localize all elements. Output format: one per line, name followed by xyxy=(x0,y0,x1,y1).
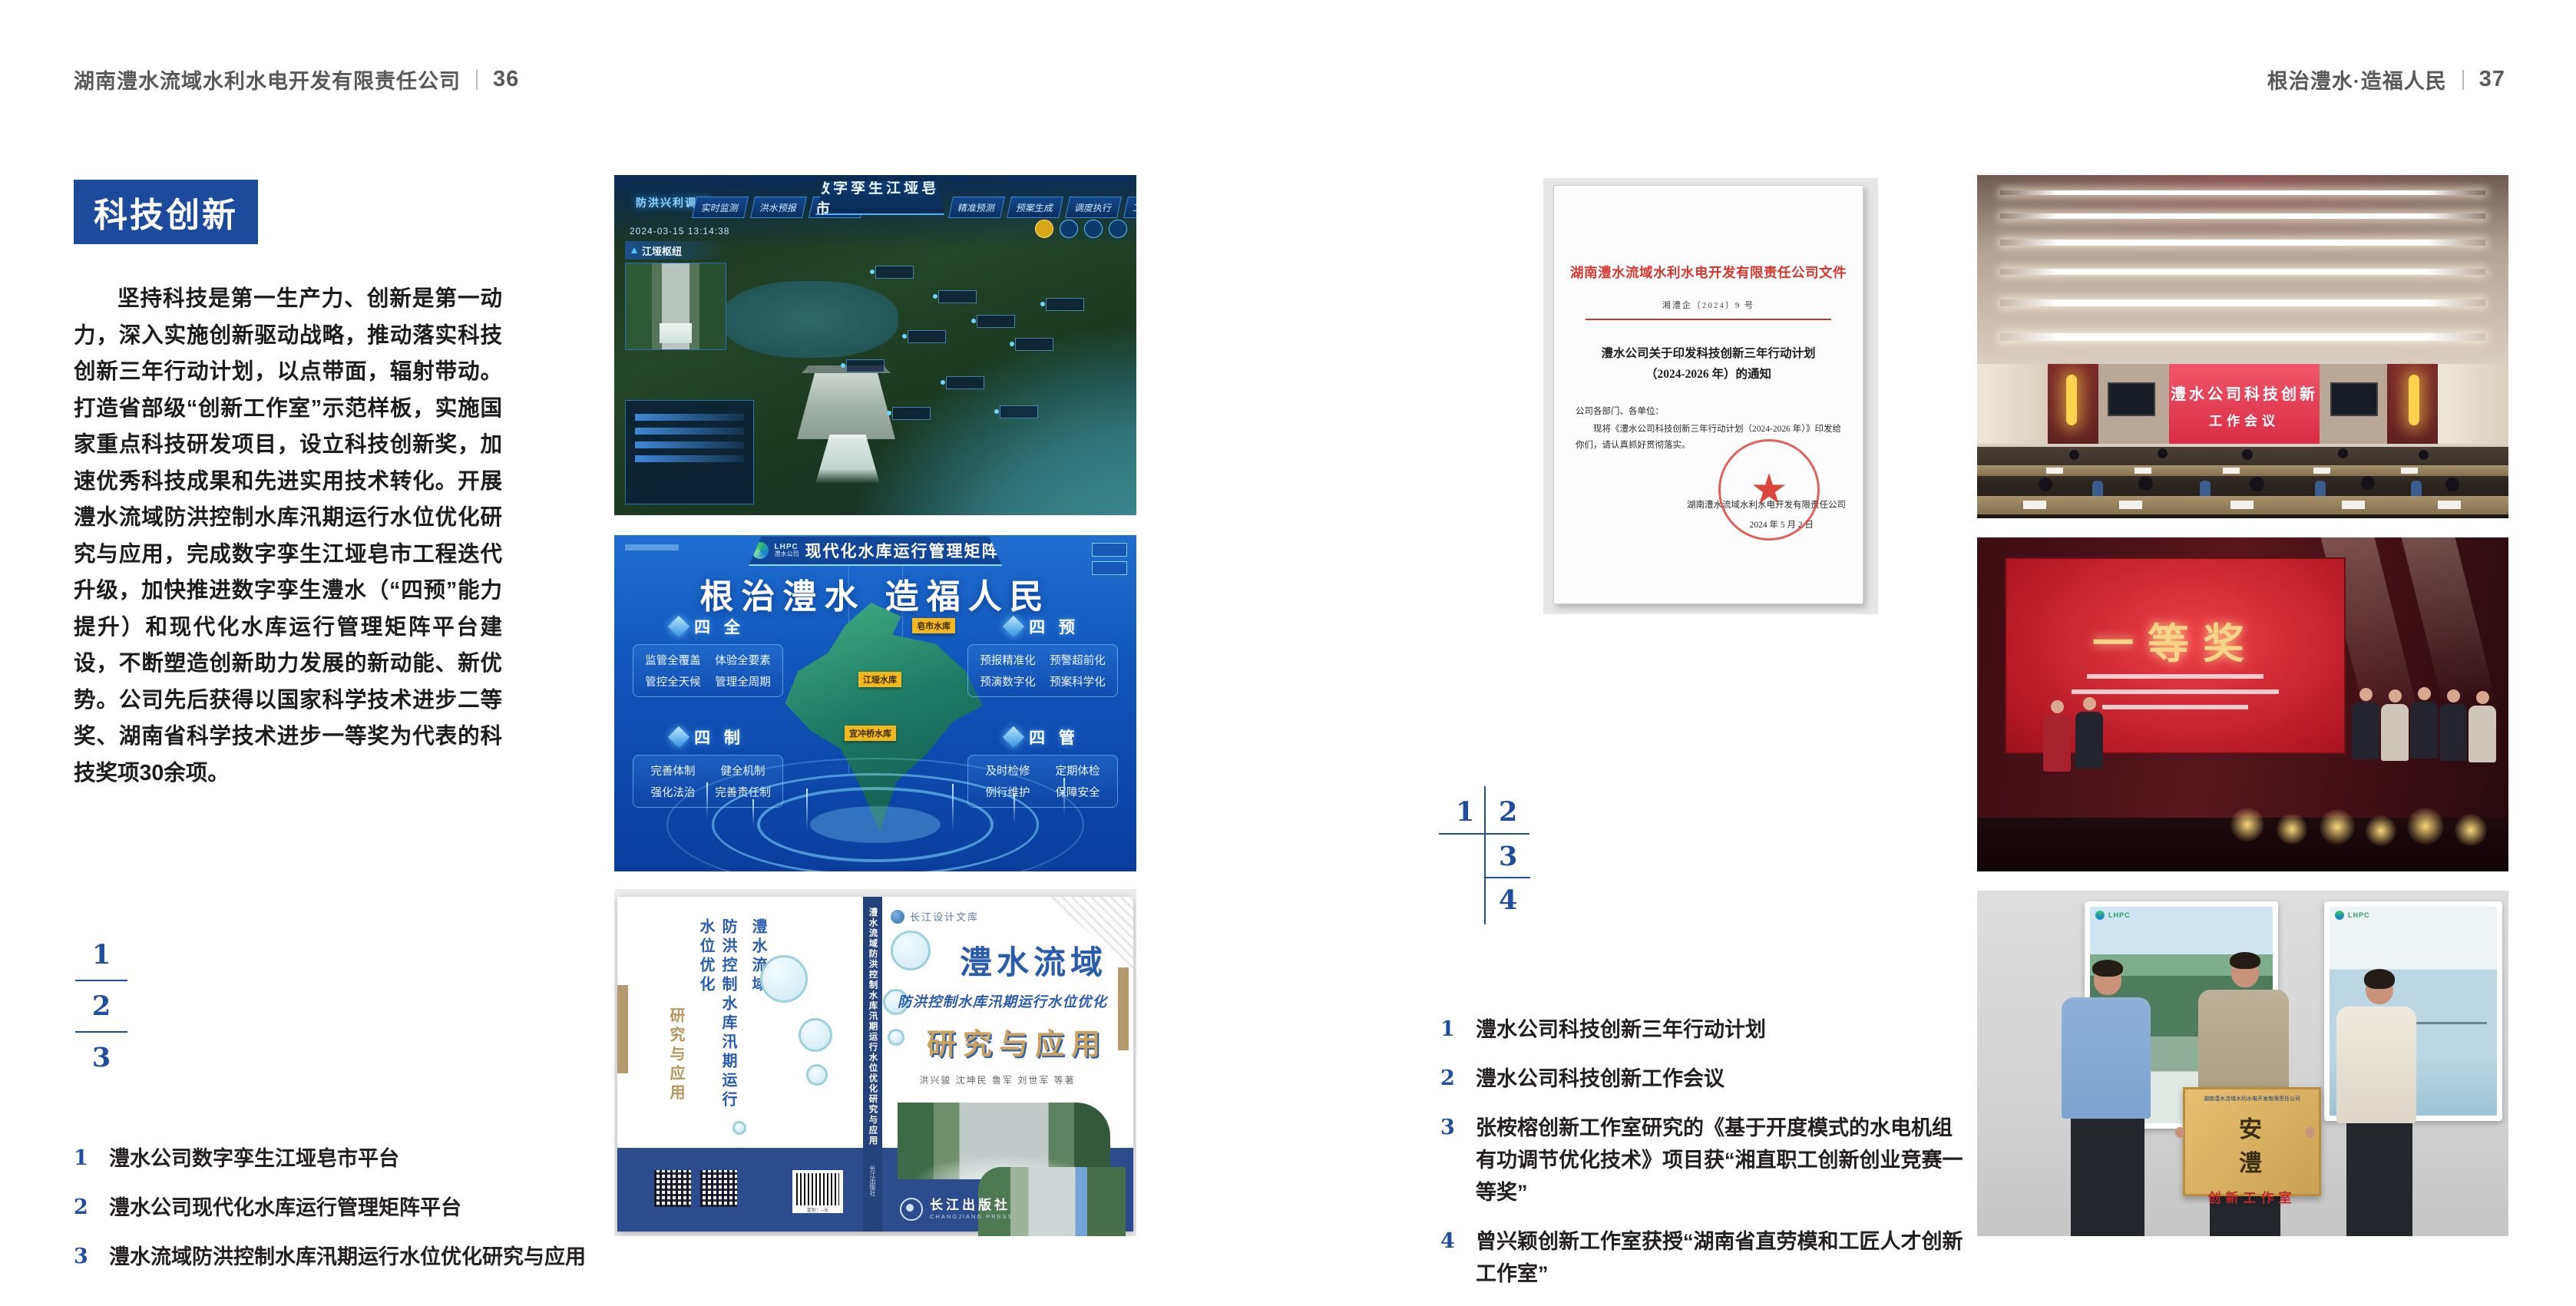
document-number: 湘澧企〔2024〕9 号 xyxy=(1554,299,1863,311)
figure-key-3: 3 xyxy=(75,1044,127,1071)
attendee xyxy=(2242,449,2253,460)
lhpc-logo-icon xyxy=(2335,911,2344,920)
hud-title-plate: 数字孪生江垭皂市 xyxy=(815,181,944,215)
right-page-number: 37 xyxy=(2479,67,2505,92)
attendee xyxy=(2445,478,2459,491)
panel-item: 预报精准化 xyxy=(976,652,1040,668)
chair xyxy=(2411,481,2422,496)
gold-lamp xyxy=(2320,809,2355,845)
logo-name: 澧水公司 xyxy=(775,551,799,557)
map-data-tag xyxy=(908,330,946,343)
attendee xyxy=(2361,476,2375,490)
plaque-subtitle: 创新工作室 xyxy=(2190,1187,2314,1206)
person-head xyxy=(2231,957,2259,987)
publisher-icon xyxy=(900,1198,923,1221)
ceiling-light xyxy=(2000,240,2485,246)
caption-text: 张桉榕创新工作室研究的《基于开度模式的水电机组有功调节优化技术》项目获“湘直职工… xyxy=(1476,1112,1967,1208)
ceiling-light xyxy=(2000,299,2485,306)
document-letterhead: 湖南澧水流域水利水电开发有限责任公司文件 xyxy=(1554,263,1863,282)
hud-tab: 实时监测 xyxy=(692,197,749,218)
side-screen xyxy=(2330,382,2378,416)
panel-items: 预报精准化 预警超前化 预演数字化 预案科学化 xyxy=(967,644,1118,697)
figure-key-3: 3 xyxy=(1499,843,1517,870)
awardee-figure xyxy=(2410,687,2438,759)
chair xyxy=(2092,481,2103,496)
right-page-header: 根治澧水·造福人民 37 xyxy=(2267,64,2505,94)
front-title-sub: 防洪控制水库汛期运行水位优化 xyxy=(888,991,1107,1011)
awardee-figure xyxy=(2469,691,2496,762)
layer-icon xyxy=(1060,220,1078,238)
paper xyxy=(2401,468,2418,474)
panel-item: 管理全周期 xyxy=(711,673,775,689)
settings-icon xyxy=(1109,220,1127,238)
back-title-sub: 防洪控制水库汛期运行水位优化 xyxy=(695,918,739,1110)
right-caption-list: 1 澧水公司科技创新三年行动计划 2 澧水公司科技创新工作会议 3 张桉榕创新工… xyxy=(1440,1013,1967,1290)
paper xyxy=(2119,501,2142,509)
series-logo: 长江设计文库 xyxy=(891,909,979,924)
back-title-main: 澧水流域 xyxy=(747,918,769,1110)
left-page-number: 36 xyxy=(493,67,519,92)
ceiling-light xyxy=(2000,190,2485,195)
caption-number: 3 xyxy=(1440,1112,1457,1144)
panel-item: 体验全要素 xyxy=(711,652,775,668)
document-body: 现将《澧水公司科技创新三年行动计划（2024-2026 年）》印发给你们，请认真… xyxy=(1576,422,1841,454)
front-title-main: 澧水流域 xyxy=(888,937,1107,984)
dashboard-timestamp: 2024-03-15 13:14:38 xyxy=(630,226,729,236)
left-page-header: 湖南澧水流域水利水电开发有限责任公司 36 xyxy=(74,64,519,94)
header-divider xyxy=(476,70,478,90)
panel-title: 江垭枢纽 xyxy=(625,241,726,260)
key-rule-vertical xyxy=(1484,786,1486,924)
light-pillar xyxy=(806,789,808,832)
award-title: 一等奖 xyxy=(2006,610,2344,670)
map-data-tag xyxy=(892,407,931,420)
publisher-logo: 长江出版社 CHANGJIANG PRESS xyxy=(900,1198,1014,1221)
caption-number: 3 xyxy=(74,1241,91,1273)
back-cover-vertical-title: 澧水流域 防洪控制水库汛期运行水位优化 研究与应用 xyxy=(657,918,769,1110)
caption-text: 澧水公司现代化水库运行管理矩阵平台 xyxy=(109,1192,461,1224)
spine-title: 澧水流域防洪控制水库汛期运行水位优化研究与应用 xyxy=(867,908,879,1161)
subject-line-1: 澧水公司关于印发科技创新三年行动计划 xyxy=(1554,343,1863,364)
attendee xyxy=(2250,477,2264,491)
spine-publisher: 长江出版社 xyxy=(868,1165,877,1196)
attendee xyxy=(2158,448,2168,458)
water-droplet xyxy=(806,1064,828,1086)
publisher-name-en: CHANGJIANG PRESS xyxy=(930,1213,1014,1220)
wall-lamp xyxy=(2066,375,2077,425)
document-salutation: 公司各部门、各单位： xyxy=(1576,405,1841,417)
attendee xyxy=(2419,450,2429,460)
figure-key-4: 4 xyxy=(1499,887,1517,914)
poster-logo-text: LHPC xyxy=(2108,911,2131,919)
document-subject: 澧水公司关于印发科技创新三年行动计划 （2024-2026 年）的通知 xyxy=(1554,343,1863,385)
water-droplet xyxy=(760,955,808,1003)
intro-paragraph: 坚持科技是第一生产力、创新是第一动力，深入实施创新驱动战略，推动落实科技创新三年… xyxy=(74,281,502,792)
ceiling-light xyxy=(2000,333,2485,341)
map-data-tag xyxy=(938,290,977,303)
panel-siquan: 四 全 监管全覆盖 体验全要素 管控全天候 管理全周期 xyxy=(633,615,783,697)
wall-lamp xyxy=(2409,375,2419,425)
figure-key-2: 2 xyxy=(1499,798,1517,825)
barcode-label: 定价：--元 xyxy=(792,1206,843,1213)
left-figure-key: 1 2 3 xyxy=(75,941,127,1071)
panel-label: 四 全 xyxy=(633,615,783,638)
document-page: 湖南澧水流域水利水电开发有限责任公司文件 湘澧企〔2024〕9 号 澧水公司关于… xyxy=(1553,185,1863,604)
gold-lamp xyxy=(2230,808,2264,841)
diamond-icon xyxy=(1003,726,1024,748)
caption-number: 2 xyxy=(74,1192,91,1224)
diamond-icon xyxy=(668,616,689,637)
paper xyxy=(2135,468,2151,474)
figure-official-document: 湖南澧水流域水利水电开发有限责任公司文件 湘澧企〔2024〕9 号 澧水公司关于… xyxy=(1543,178,1878,614)
light-pillar xyxy=(952,784,954,832)
caption-number: 1 xyxy=(1440,1013,1457,1046)
panel-name: 四 制 xyxy=(694,726,745,749)
paper xyxy=(2342,501,2365,509)
light-beam xyxy=(2402,537,2498,706)
screen-text-line xyxy=(2087,674,2264,679)
barcode: 定价：--元 xyxy=(792,1170,843,1213)
left-caption-list: 1 澧水公司数字孪生江垭皂市平台 2 澧水公司现代化水库运行管理矩阵平台 3 澧… xyxy=(74,1142,586,1273)
light-pillar xyxy=(1063,778,1065,815)
section-title-badge: 科技创新 xyxy=(74,180,258,244)
caption-row: 2 澧水公司现代化水库运行管理矩阵平台 xyxy=(74,1192,586,1224)
caption-text: 曾兴颖创新工作室获授“湖南省直劳模和工匠人才创新工作室” xyxy=(1476,1225,1967,1290)
hud-tab: 预案生成 xyxy=(1007,197,1063,218)
caption-text: 澧水公司科技创新工作会议 xyxy=(1476,1063,1724,1095)
light-pillar xyxy=(752,799,754,825)
paper xyxy=(2230,501,2254,509)
authors-line: 洪兴骏 沈坤民 鲁军 刘世军 等著 xyxy=(888,1073,1107,1086)
ceiling-light xyxy=(2000,213,2485,219)
wall-pillar xyxy=(1977,364,2048,447)
map-data-tag xyxy=(1000,405,1038,418)
paper xyxy=(2438,501,2461,509)
map-data-tag xyxy=(1046,298,1084,311)
light-pillar xyxy=(706,782,708,818)
red-rule xyxy=(1586,319,1831,320)
map-data-tag xyxy=(846,359,885,372)
plaque-name: 安 澧 xyxy=(2207,1110,2314,1178)
series-logo-icon xyxy=(891,910,904,924)
caption-row: 2 澧水公司科技创新工作会议 xyxy=(1440,1063,1967,1095)
person-legs xyxy=(2346,1123,2412,1236)
photo-meeting-room: 澧水公司科技创新 工作会议 xyxy=(1977,175,2508,518)
paper xyxy=(2223,468,2240,474)
panel-item: 预演数字化 xyxy=(976,673,1040,689)
panel-name: 四 预 xyxy=(1029,615,1080,638)
diamond-icon xyxy=(1003,616,1024,637)
figure-key-2: 2 xyxy=(75,993,127,1020)
publisher-name: 长江出版社 xyxy=(930,1199,1014,1213)
panel-item: 预案科学化 xyxy=(1046,673,1109,689)
back-tan-tab xyxy=(617,985,628,1073)
front-title-tail: 研究与应用 xyxy=(888,1020,1107,1063)
chair xyxy=(2200,481,2211,496)
platform-title: 现代化水库运行管理矩阵 xyxy=(805,539,1000,562)
hud-tab: 洪水预报 xyxy=(750,197,807,218)
panel-label: 四 预 xyxy=(967,615,1118,638)
panel-item: 预警超前化 xyxy=(1046,652,1109,668)
platform-header: LHPC 澧水公司 现代化水库运行管理矩阵 xyxy=(749,537,1002,566)
meeting-screen: 澧水公司科技创新 工作会议 xyxy=(2169,364,2320,447)
paper xyxy=(2313,468,2330,474)
hud-tab: 调度执行 xyxy=(1065,197,1122,218)
book-spine: 澧水流域防洪控制水库汛期运行水位优化研究与应用 长江出版社 xyxy=(863,897,882,1232)
fullscreen-button xyxy=(1092,543,1127,557)
hud-tabs-right: 精准预测 预案生成 调度执行 工程探览 xyxy=(951,197,1136,218)
person-head xyxy=(2094,964,2121,995)
map-data-tag xyxy=(946,376,984,389)
screen-line-1: 澧水公司科技创新 xyxy=(2171,382,2318,404)
map-data-tag xyxy=(875,266,914,279)
back-title-tail: 研究与应用 xyxy=(665,1007,687,1110)
hand xyxy=(2306,1127,2315,1138)
panel-label: 四 管 xyxy=(967,726,1118,749)
plaque-org-line: 湖南澧水流域水利水电开发有限责任公司 xyxy=(2190,1095,2314,1103)
person-shirt xyxy=(2336,1007,2416,1123)
subject-line-2: （2024-2026 年）的通知 xyxy=(1554,364,1863,385)
figure-book-cover: 澧水流域 防洪控制水库汛期运行水位优化 研究与应用 定价：--元 澧水流域防洪控… xyxy=(614,889,1136,1236)
awardee-figure xyxy=(2439,689,2467,761)
screen-text-line xyxy=(2102,705,2248,709)
qr-codes xyxy=(654,1170,737,1207)
brochure-spread: 湖南澧水流域水利水电开发有限责任公司 36 根治澧水·造福人民 37 科技创新 … xyxy=(0,0,2576,1306)
gold-lamp xyxy=(2407,808,2444,845)
map-label: 江垭水库 xyxy=(858,672,901,687)
key-rule-horizontal xyxy=(1439,833,1529,835)
panel-name: 四 全 xyxy=(694,615,745,638)
diamond-icon xyxy=(668,726,689,748)
caption-text: 澧水公司数字孪生江垭皂市平台 xyxy=(109,1142,399,1175)
gold-lamp xyxy=(2366,815,2396,846)
side-screen xyxy=(2108,382,2155,416)
gold-lamp xyxy=(2455,814,2487,846)
attendee xyxy=(2039,478,2052,491)
attendee xyxy=(2069,450,2079,460)
poster-logo-text: LHPC xyxy=(2348,911,2370,919)
front-tan-tab xyxy=(1118,967,1129,1050)
caption-number: 2 xyxy=(1440,1063,1457,1095)
person-head xyxy=(2366,974,2393,1004)
hud-data-panel xyxy=(625,400,754,504)
dam-thumbnail xyxy=(625,263,726,350)
person-left xyxy=(2062,964,2154,1236)
caption-number: 1 xyxy=(74,1142,91,1175)
platform-timestamp-bar xyxy=(625,544,679,551)
gold-lamp xyxy=(2277,814,2307,845)
ceiling-light xyxy=(2000,269,2485,275)
person-figure xyxy=(2075,697,2103,769)
caption-row: 1 澧水公司科技创新三年行动计划 xyxy=(1440,1013,1967,1046)
person-shirt xyxy=(2062,997,2151,1119)
hud-tab: 精准预测 xyxy=(948,197,1005,218)
panel-item: 管控全天候 xyxy=(641,673,705,689)
light-pillar xyxy=(1014,793,1015,824)
hologram-rings xyxy=(660,752,1090,871)
studio-plaque: 湖南澧水流域水利水电开发有限责任公司 安 澧 创新工作室 xyxy=(2183,1087,2321,1196)
hub-thumbnail-panel: 江垭枢纽 xyxy=(625,241,726,350)
figure-key-1: 1 xyxy=(75,941,127,968)
figure-key-1: 1 xyxy=(1456,798,1474,825)
header-divider xyxy=(2462,70,2464,90)
lhpc-logo-icon xyxy=(2095,911,2105,920)
seal-star-icon xyxy=(1752,473,1786,507)
motto-text: 根治澧水·造福人民 xyxy=(2267,64,2447,94)
paper xyxy=(2023,501,2046,509)
attendee xyxy=(2138,476,2153,491)
person-right xyxy=(2336,974,2422,1236)
map-data-tag xyxy=(977,315,1015,328)
poster-logo: LHPC xyxy=(2095,911,2131,920)
dashboard-title: 数字孪生江垭皂市 xyxy=(815,177,944,218)
map-label: 皂市水库 xyxy=(912,618,955,633)
series-name: 长江设计文库 xyxy=(910,909,979,924)
person-legs xyxy=(2071,1119,2144,1236)
water-droplet xyxy=(799,1018,832,1052)
panel-siyu: 四 预 预报精准化 预警超前化 预演数字化 预案科学化 xyxy=(967,615,1118,697)
hud-tab: 工程探览 xyxy=(1123,197,1136,218)
caption-row: 1 澧水公司数字孪生江垭皂市平台 xyxy=(74,1142,586,1175)
company-name: 湖南澧水流域水利水电开发有限责任公司 xyxy=(74,64,461,94)
paper xyxy=(2046,468,2063,474)
upstream-lake xyxy=(722,281,898,358)
caption-number: 4 xyxy=(1440,1225,1457,1258)
official-seal xyxy=(1718,439,1820,541)
photo-studio-plaque: LHPC LHPC 湖南澧水流域水利水电开发有限责任公司 xyxy=(1977,891,2508,1236)
panel-label: 四 制 xyxy=(633,726,783,749)
map-data-tag xyxy=(1015,338,1053,351)
front-title-block: 澧水流域 防洪控制水库汛期运行水位优化 研究与应用 洪兴骏 沈坤民 鲁军 刘世军… xyxy=(888,937,1107,1086)
alert-icon xyxy=(1035,220,1053,238)
figure-digital-twin-platform: 防洪兴利调度 实时监测 洪水预报 防洪预警 数字孪生江垭皂市 精准预测 预案生成… xyxy=(614,175,1136,515)
key-rule xyxy=(75,1031,127,1033)
photo-award-ceremony: 一等奖 xyxy=(1977,537,2508,871)
wall-pillar xyxy=(2438,364,2508,447)
caption-row: 3 张桉榕创新工作室研究的《基于开度模式的水电机组有功调节优化技术》项目获“湘直… xyxy=(1440,1112,1967,1208)
panel-items: 监管全覆盖 体验全要素 管控全天候 管理全周期 xyxy=(633,644,783,697)
poster-logo: LHPC xyxy=(2335,911,2370,920)
lhpc-logo-text: LHPC 澧水公司 xyxy=(775,544,799,557)
book-cover-spread: 澧水流域 防洪控制水库汛期运行水位优化 研究与应用 定价：--元 澧水流域防洪控… xyxy=(617,897,1133,1232)
host-figure xyxy=(2043,700,2071,772)
screen-text-line xyxy=(2072,689,2279,694)
lhpc-logo-icon xyxy=(752,542,769,559)
key-rule-horizontal xyxy=(1484,877,1530,878)
key-rule xyxy=(75,980,127,981)
hud-icon-group xyxy=(1035,220,1127,238)
awardee-figure xyxy=(2381,689,2409,761)
hand xyxy=(2175,1127,2184,1138)
map-label: 宜冲桥水库 xyxy=(845,726,896,741)
panel-name: 四 管 xyxy=(1029,726,1080,749)
screen-line-2: 工作会议 xyxy=(2209,410,2280,429)
figure-matrix-platform: LHPC 澧水公司 现代化水库运行管理矩阵 根治澧水 造福人民 皂市水库 江垭水… xyxy=(614,535,1136,871)
caption-text: 澧水公司科技创新三年行动计划 xyxy=(1476,1013,1766,1046)
caption-text: 澧水流域防洪控制水库汛期运行水位优化研究与应用 xyxy=(109,1241,586,1273)
caption-row: 3 澧水流域防洪控制水库汛期运行水位优化研究与应用 xyxy=(74,1241,586,1273)
locate-icon xyxy=(1084,220,1103,238)
attendee xyxy=(2338,448,2348,458)
panel-item: 监管全覆盖 xyxy=(641,652,705,668)
water-droplet xyxy=(732,1121,746,1135)
awardee-figure xyxy=(2352,688,2379,759)
chair xyxy=(2315,481,2326,496)
caption-row: 4 曾兴颖创新工作室获授“湖南省直劳模和工匠人才创新工作室” xyxy=(1440,1225,1967,1290)
